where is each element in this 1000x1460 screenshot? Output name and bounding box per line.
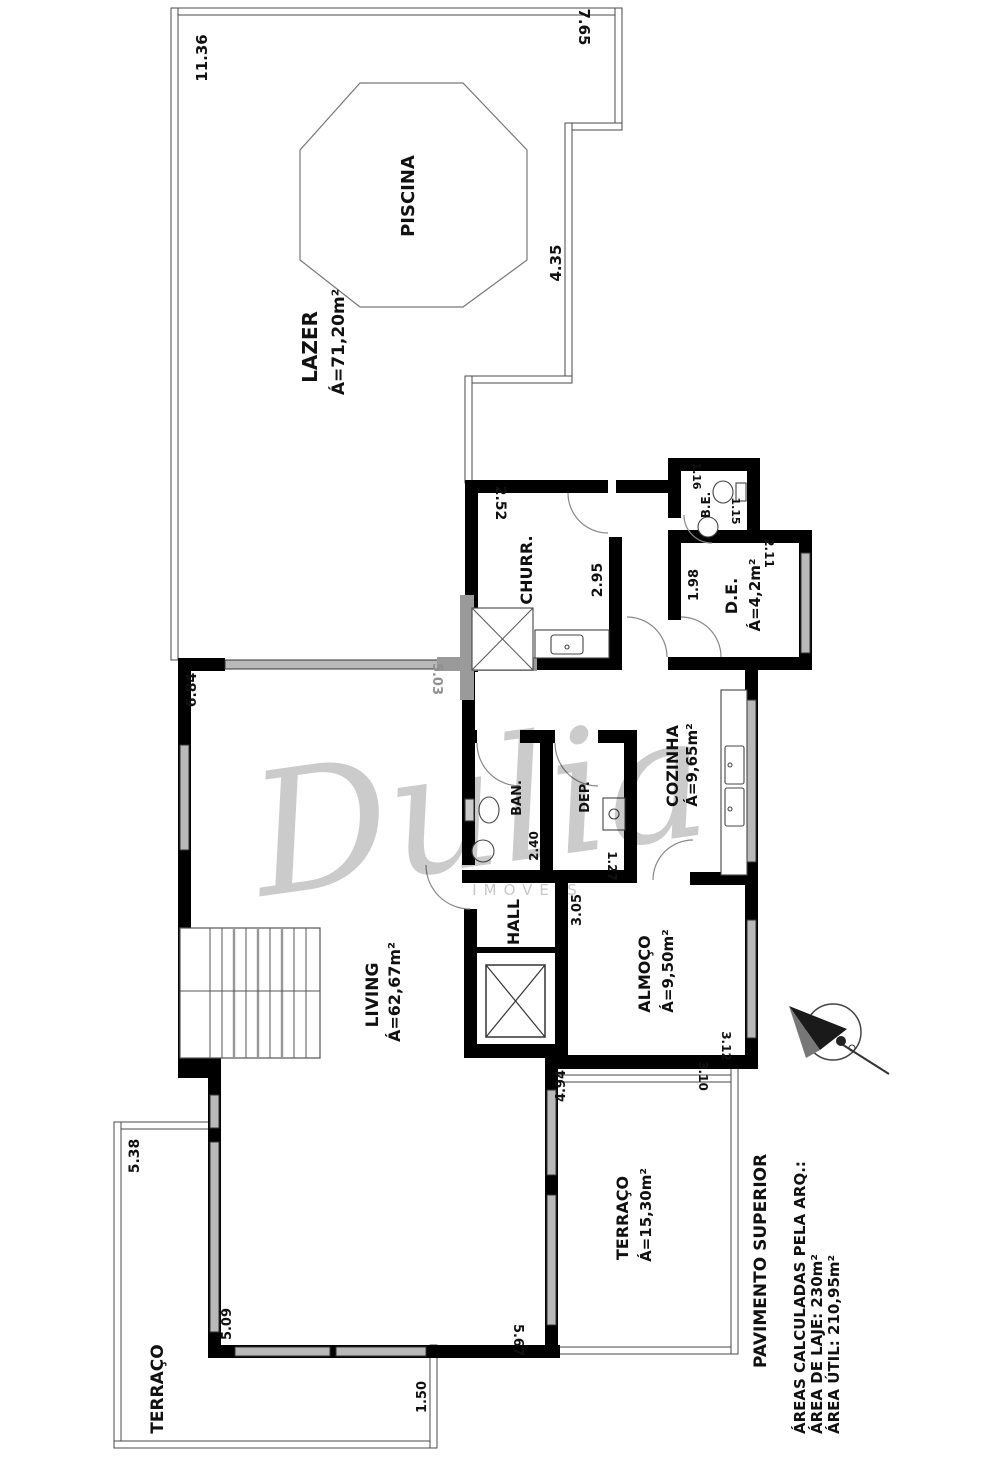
churrasqueira-sink xyxy=(535,630,609,658)
kitchen-counter xyxy=(721,690,747,875)
room-label-lazer: LAZER xyxy=(298,311,322,383)
staircase xyxy=(180,928,320,1058)
dim-terraco-dir-topo: 3.10 xyxy=(696,1061,710,1091)
room-area-terraco-direito: Á=15,30m² xyxy=(636,1168,655,1262)
room-label-almoco: ALMOÇO xyxy=(635,935,654,1012)
dim-de-esquerda: 1.98 xyxy=(687,569,702,601)
dim-lazer-topo: 7.65 xyxy=(575,8,593,45)
room-label-churrasqueira: CHURR. xyxy=(517,535,536,604)
dim-eixo-living: 5.03 xyxy=(429,663,444,695)
room-label-terraco-direito: TERRAÇO xyxy=(613,1176,632,1260)
floor-plan-drawing: Dulia IMÓVEIS PISCINA LAZER Á=71,20m² CH… xyxy=(0,0,1000,1460)
dim-living-esquerda: 6.84 xyxy=(184,672,200,707)
dim-de-topo: 2.11 xyxy=(762,538,776,568)
room-label-hall: HALL xyxy=(504,899,523,945)
footer-area-laje: ÁREA DE LAJE: 230m² xyxy=(807,1254,826,1434)
room-area-living: Á=62,67m² xyxy=(385,942,404,1042)
footer-areas-heading: ÁREAS CALCULADAS PELA ARQ.: xyxy=(790,1161,809,1434)
footer-notes: PAVIMENTO SUPERIOR ÁREAS CALCULADAS PELA… xyxy=(751,1154,843,1434)
room-label-living: LIVING xyxy=(363,963,383,1028)
room-area-cozinha: Á=9,65m² xyxy=(682,723,701,806)
room-label-de: D.E. xyxy=(722,578,741,614)
room-area-almoco: Á=9,50m² xyxy=(658,929,677,1012)
dim-dep-baixo: 1.27 xyxy=(605,851,619,881)
elevator xyxy=(473,950,558,1052)
room-label-banheiro: BAN. xyxy=(510,780,525,816)
room-label-terraco-esquerdo: TERRAÇO xyxy=(148,1344,168,1433)
dim-living-baixo: 5.67 xyxy=(510,1324,525,1356)
dim-lazer-direita: 4.35 xyxy=(547,244,565,281)
dim-churr-direita: 2.95 xyxy=(590,563,606,598)
dim-be-topo: 1.16 xyxy=(690,462,703,489)
dim-almoco-baixo: 3.12 xyxy=(719,1031,733,1061)
barbecue-grill xyxy=(472,608,533,670)
dim-living-ext-direita: 4.94 xyxy=(554,1070,569,1102)
dim-terraco-esq-esquerda: 5.38 xyxy=(127,1139,143,1174)
north-arrow-icon xyxy=(789,1004,889,1074)
dim-terraco-esq-direita: 1.50 xyxy=(415,1381,430,1413)
dim-living-ext-esquerda: 5.09 xyxy=(220,1308,235,1340)
dim-be-direita: 1.15 xyxy=(729,497,742,524)
room-label-be: B.E. xyxy=(699,492,713,518)
room-area-lazer: Á=71,20m² xyxy=(327,289,349,395)
room-label-piscina: PISCINA xyxy=(398,155,419,237)
dim-churr-topo: 2.52 xyxy=(492,486,508,521)
dim-lazer-esquerda: 11.36 xyxy=(193,34,211,81)
floor-plan-canvas: Dulia IMÓVEIS PISCINA LAZER Á=71,20m² CH… xyxy=(0,0,1000,1460)
plan-title: PAVIMENTO SUPERIOR xyxy=(751,1154,771,1368)
room-label-deposito: DEP. xyxy=(578,781,593,813)
dim-almoco-topo: 3.05 xyxy=(570,894,585,926)
room-area-de: Á=4,2m² xyxy=(745,559,764,632)
room-label-cozinha: COZINHA xyxy=(663,724,682,807)
watermark-subtext: IMÓVEIS xyxy=(472,880,584,899)
footer-area-util: ÁREA ÚTIL: 210,95m² xyxy=(824,1255,843,1434)
dim-ban-direita: 2.40 xyxy=(527,831,541,861)
